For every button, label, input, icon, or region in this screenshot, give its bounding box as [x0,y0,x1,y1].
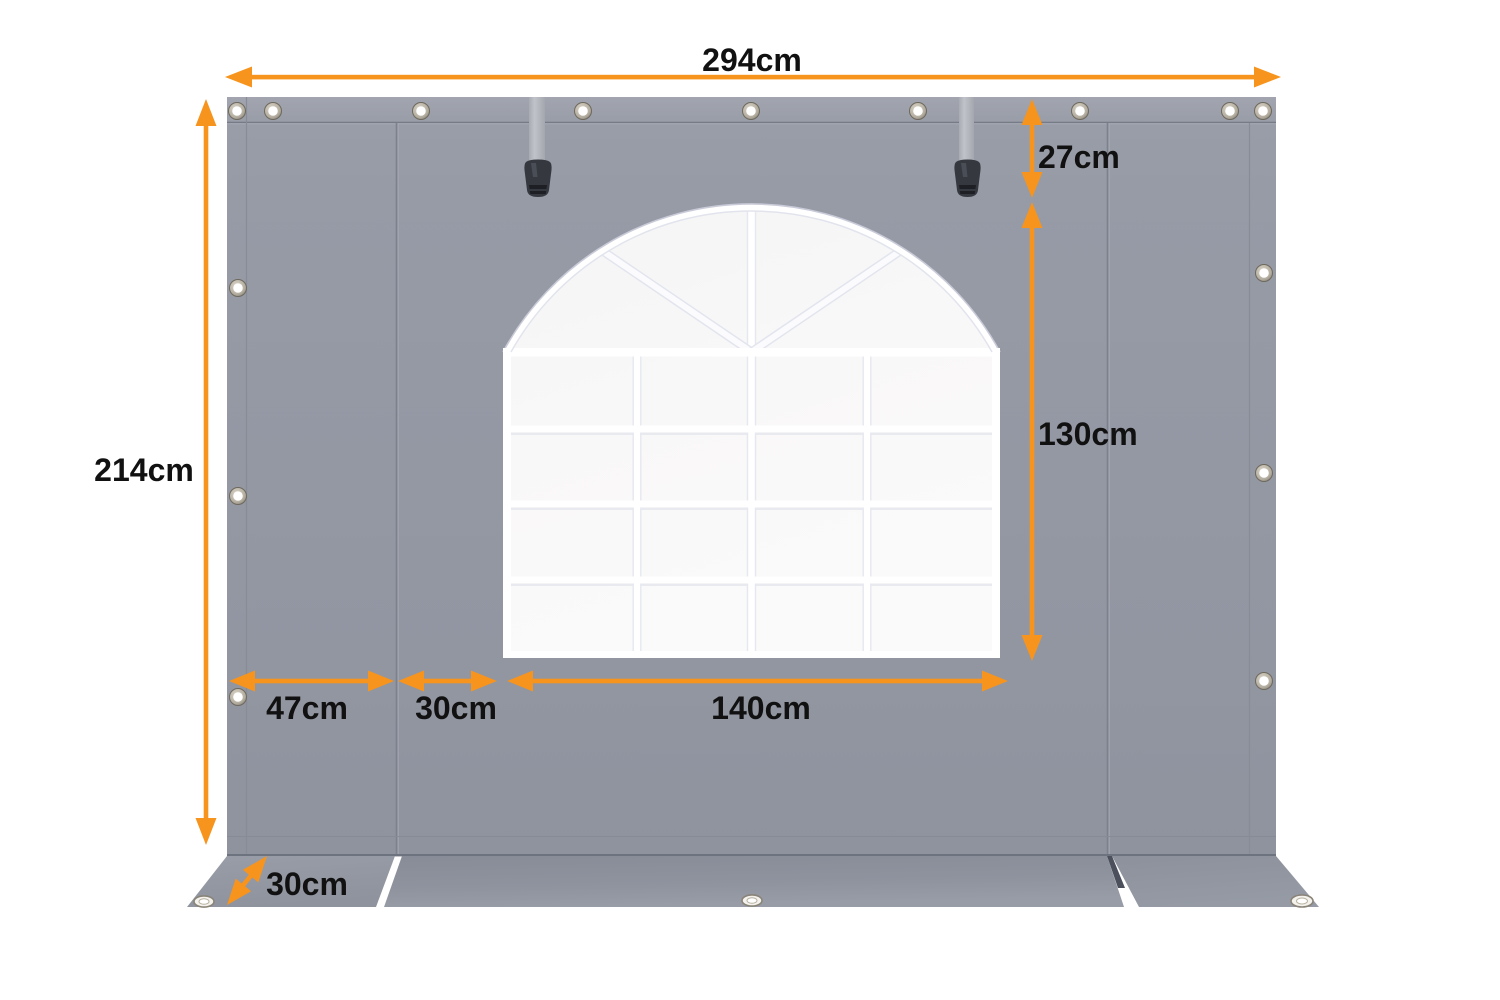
svg-text:30cm: 30cm [266,866,348,902]
svg-text:294cm: 294cm [702,42,802,78]
svg-text:47cm: 47cm [266,690,348,726]
svg-text:30cm: 30cm [415,690,497,726]
svg-text:214cm: 214cm [94,452,194,488]
svg-text:140cm: 140cm [711,690,811,726]
svg-text:27cm: 27cm [1038,139,1120,175]
svg-text:130cm: 130cm [1038,416,1138,452]
